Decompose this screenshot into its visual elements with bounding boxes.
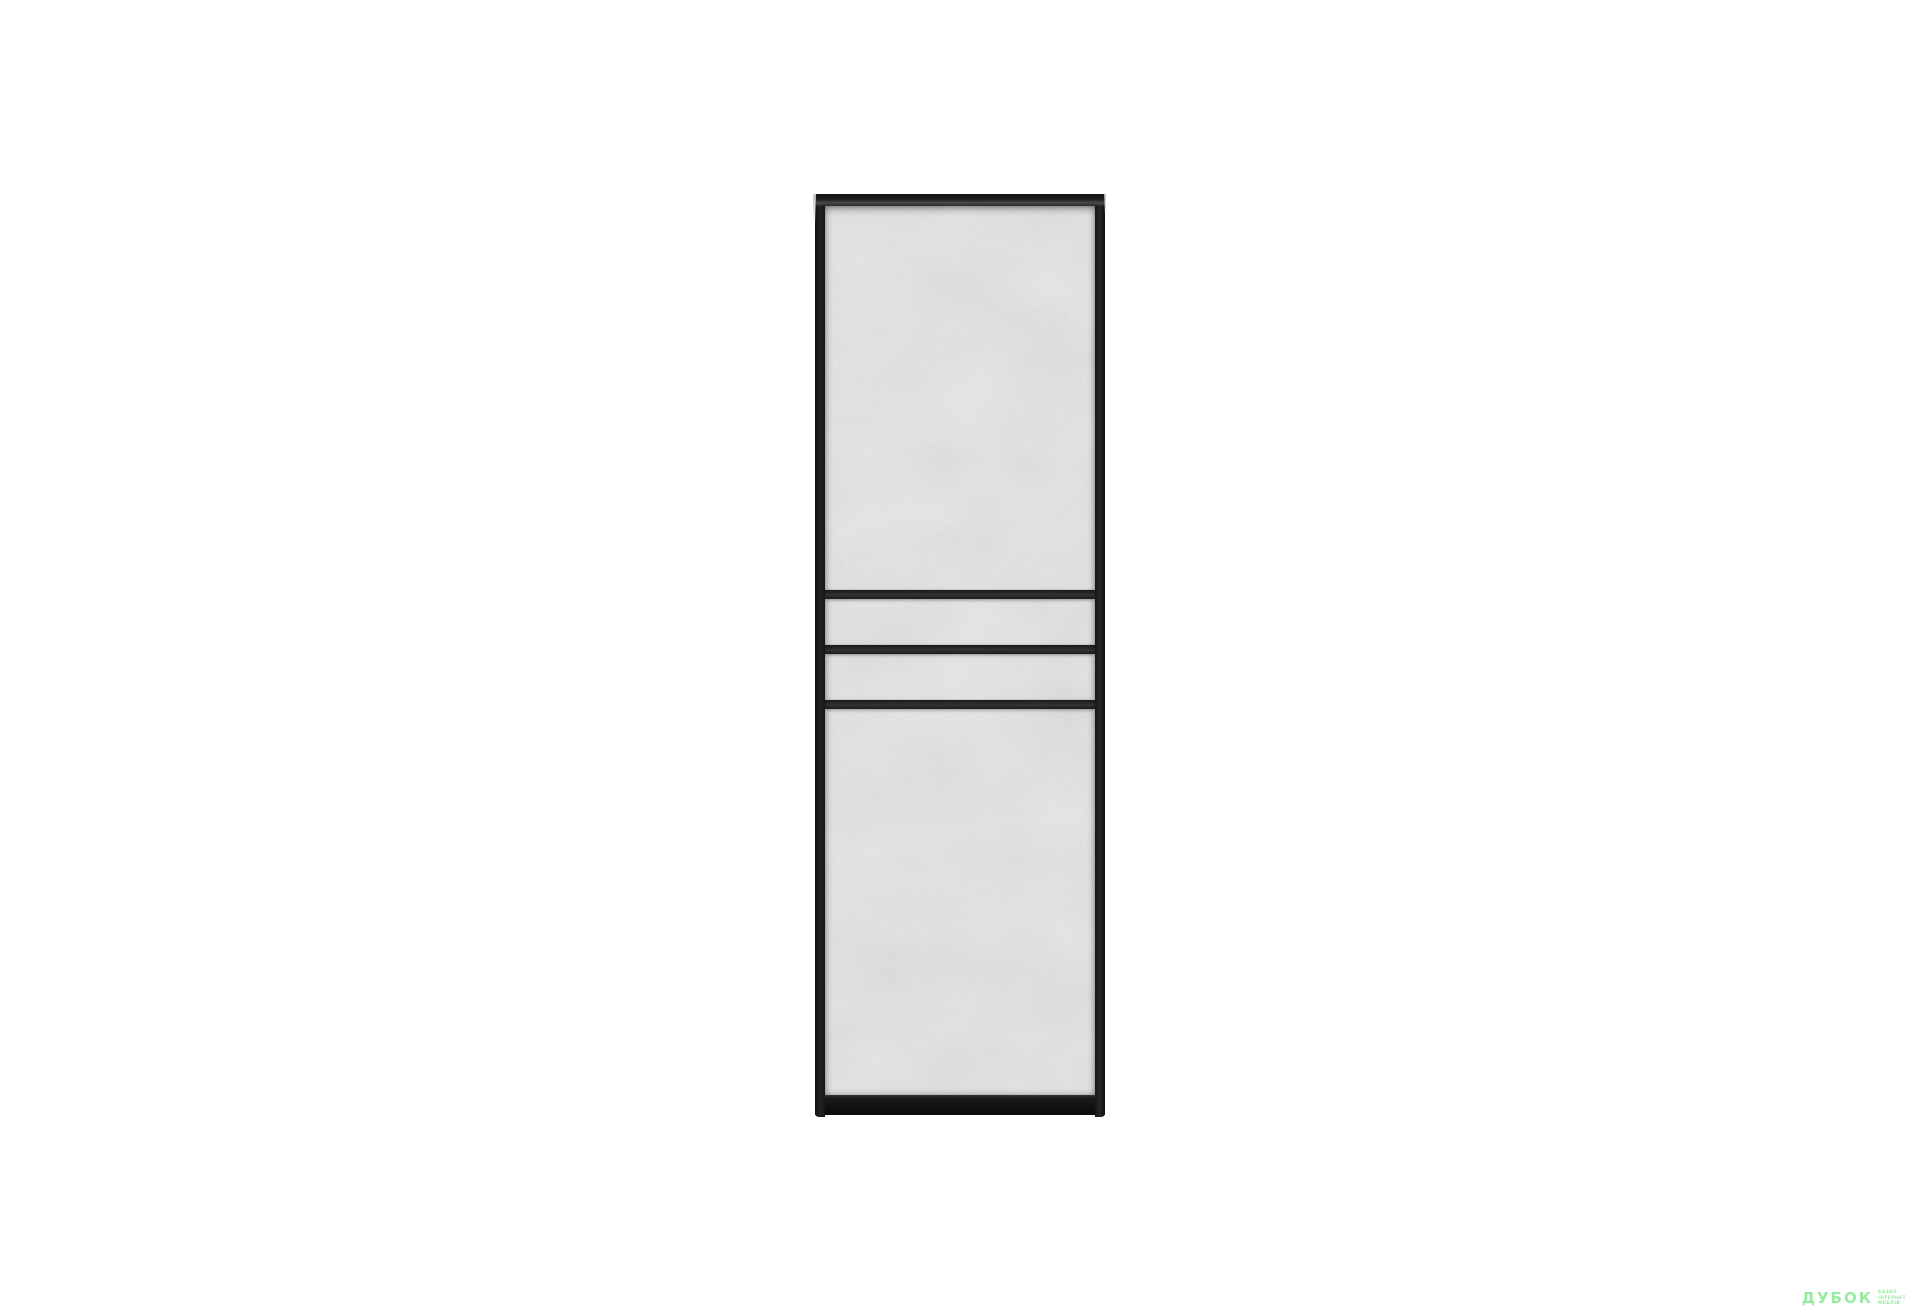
- insert-stripe-3: [825, 700, 1095, 709]
- watermark: ДУБОК БАЗАР ІНТЕРНЕТ МЕБЛІВ: [1802, 1290, 1906, 1306]
- watermark-tagline: БАЗАР ІНТЕРНЕТ МЕБЛІВ: [1878, 1290, 1906, 1306]
- left-frame-rail: [815, 194, 825, 1117]
- top-left-edge-highlight: [813, 194, 816, 224]
- insert-stripe-1: [825, 590, 1095, 599]
- door-front-panel: [825, 206, 1095, 1095]
- insert-stripe-2: [825, 645, 1095, 654]
- watermark-tagline-line-3: МЕБЛІВ: [1878, 1301, 1906, 1306]
- product-photo: ДУБОК БАЗАР ІНТЕРНЕТ МЕБЛІВ: [0, 0, 1920, 1314]
- wardrobe-door-panel: [815, 194, 1105, 1115]
- watermark-logo-text: ДУБОК: [1802, 1291, 1873, 1306]
- bottom-plinth: [815, 1095, 1105, 1115]
- right-frame-rail: [1095, 194, 1105, 1117]
- top-right-edge-highlight: [1104, 194, 1106, 214]
- top-cap-rail: [815, 194, 1105, 206]
